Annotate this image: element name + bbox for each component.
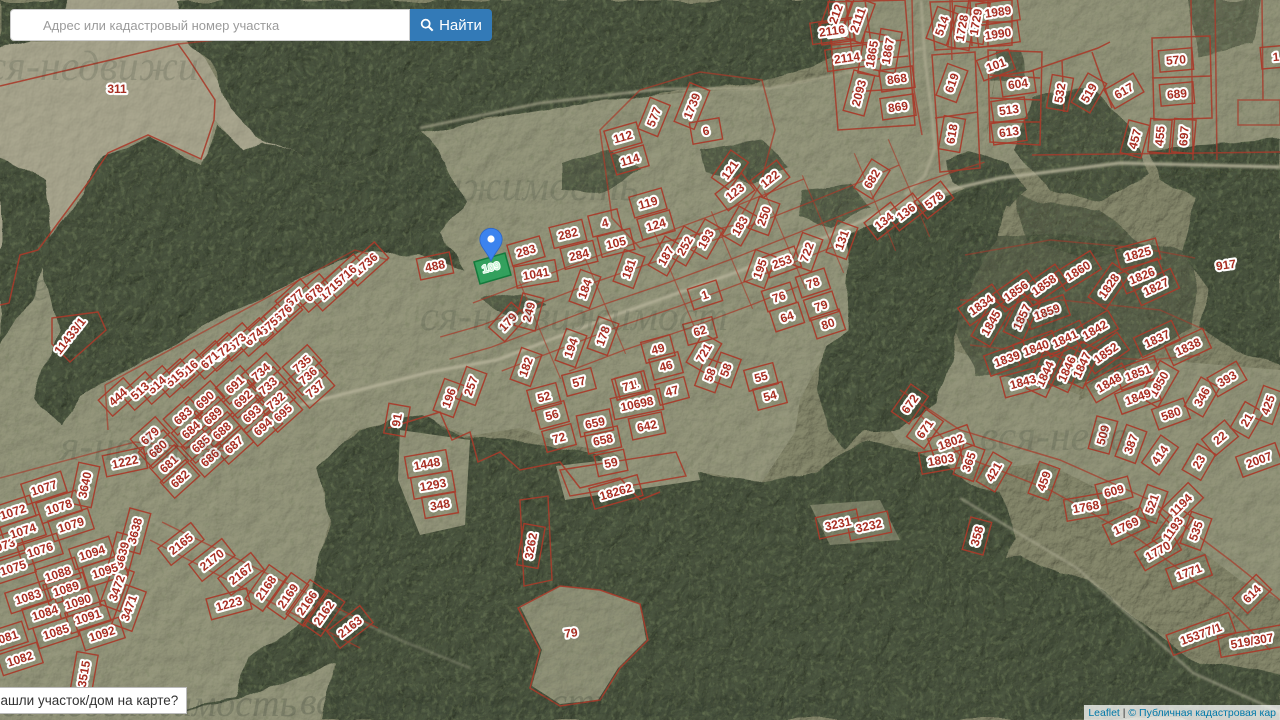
svg-text:613: 613 (998, 124, 1020, 141)
svg-text:570: 570 (1165, 52, 1186, 68)
svg-text:604: 604 (1007, 76, 1029, 93)
svg-text:ость: ость (1000, 294, 1089, 340)
svg-text:917: 917 (1215, 257, 1237, 274)
svg-text:91: 91 (389, 412, 405, 428)
svg-text:455: 455 (1152, 125, 1168, 146)
svg-text:вся-недв: вся-недв (980, 414, 1128, 460)
svg-text:697: 697 (1176, 125, 1192, 146)
svg-text:я-недвижимость: я-недвижимость (328, 164, 638, 210)
svg-text:689: 689 (1166, 86, 1187, 102)
svg-text:513: 513 (998, 102, 1020, 119)
svg-text:я-недвиж: я-недвиж (58, 424, 232, 470)
svg-text:ся-недвижим: ся-недвижим (640, 683, 855, 720)
svg-text:вся-недвижимость: вся-недвижимость (300, 681, 612, 720)
svg-text:868: 868 (886, 71, 908, 88)
svg-text:1: 1 (1272, 50, 1280, 65)
svg-text:вся-недвижи: вся-недвижи (0, 44, 199, 90)
svg-text:79: 79 (563, 625, 578, 641)
svg-text:ся-недвижимост: ся-недвижимост (420, 294, 728, 340)
svg-text:вся-не: вся-не (0, 264, 49, 310)
svg-text:869: 869 (887, 99, 909, 116)
